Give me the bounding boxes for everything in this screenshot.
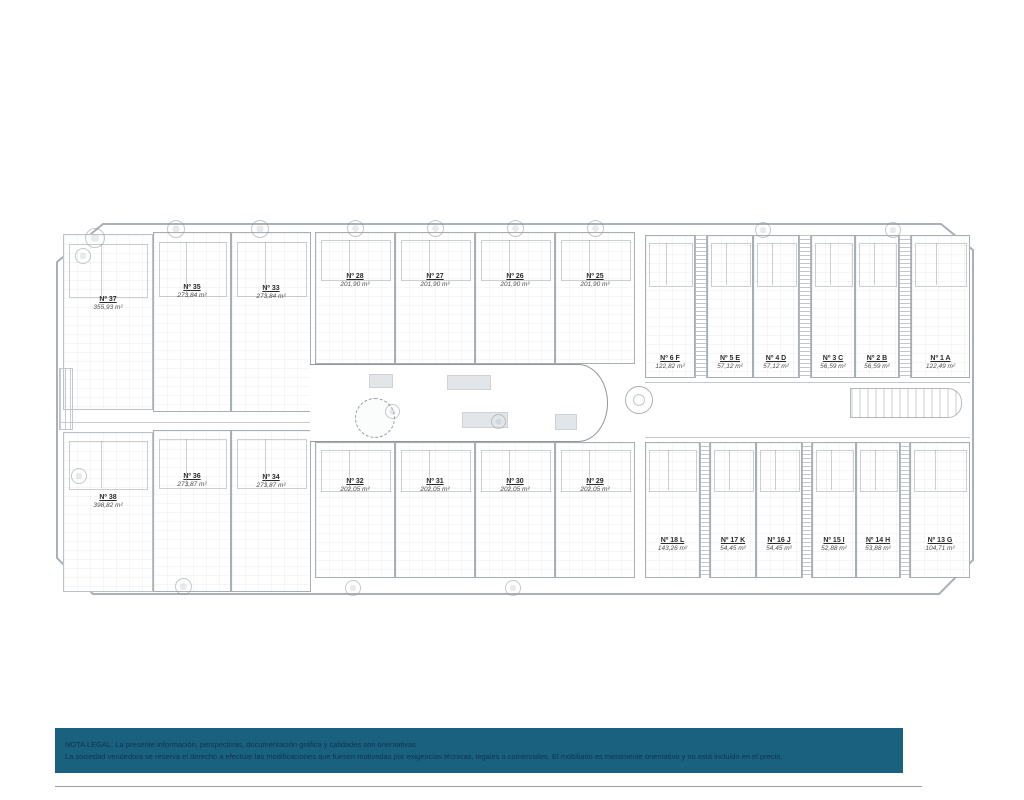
tree-icon [251, 220, 269, 238]
unit-label: Nº 27 201,90 m² [396, 233, 474, 363]
unit-number: Nº 27 [426, 272, 443, 281]
unit-number: Nº 15 I [823, 536, 844, 545]
unit-cell-25: Nº 25 201,90 m² [555, 232, 635, 364]
legal-notice-bar: NOTA LEGAL: La presente información, per… [55, 728, 903, 773]
pergola [447, 375, 491, 390]
unit-label: Nº 16 J 54,45 m² [757, 443, 801, 577]
unit-area: 201,90 m² [500, 281, 529, 289]
unit-cell-28: Nº 28 201,90 m² [315, 232, 395, 364]
stairs-icon [695, 235, 707, 378]
unit-area: 201,90 m² [580, 281, 609, 289]
unit-number: Nº 34 [262, 473, 279, 482]
unit-number: Nº 36 [183, 472, 200, 481]
unit-area: 104,71 m² [925, 545, 954, 553]
turning-circle-icon [625, 386, 653, 414]
unit-label: Nº 15 I 52,88 m² [813, 443, 855, 577]
unit-cell-32: Nº 32 202,05 m² [315, 442, 395, 578]
tree-icon [75, 248, 91, 264]
unit-label: Nº 31 202,05 m² [396, 443, 474, 577]
tree-icon [427, 220, 444, 237]
unit-area: 273,87 m² [177, 481, 206, 489]
unit-number: Nº 25 [586, 272, 603, 281]
unit-cell-27: Nº 27 201,90 m² [395, 232, 475, 364]
unit-label: Nº 29 202,05 m² [556, 443, 634, 577]
unit-label: Nº 6 F 122,82 m² [646, 236, 694, 377]
tree-icon [885, 222, 901, 238]
unit-area: 202,05 m² [420, 486, 449, 494]
unit-cell-13G: Nº 13 G 104,71 m² [910, 442, 970, 578]
unit-cell-34: Nº 34 273,87 m² [231, 430, 311, 592]
unit-cell-36: Nº 36 273,87 m² [153, 430, 231, 592]
unit-cell-2B: Nº 2 B 56,59 m² [855, 235, 899, 378]
stairs-icon [700, 442, 710, 578]
unit-label: Nº 38 398,82 m² [64, 433, 152, 591]
tree-icon [755, 222, 771, 238]
unit-label: Nº 34 273,87 m² [232, 431, 310, 591]
unit-number: Nº 13 G [928, 536, 953, 545]
bottom-divider [55, 786, 922, 787]
unit-label: Nº 33 273,84 m² [232, 233, 310, 411]
unit-label: Nº 25 201,90 m² [556, 233, 634, 363]
pergola [369, 374, 393, 388]
unit-number: Nº 4 D [766, 354, 786, 363]
unit-label: Nº 2 B 56,59 m² [856, 236, 898, 377]
unit-number: Nº 16 J [767, 536, 790, 545]
unit-area: 202,05 m² [340, 486, 369, 494]
unit-area: 57,12 m² [717, 363, 743, 371]
unit-number: Nº 31 [426, 477, 443, 486]
unit-cell-18L: Nº 18 L 143,26 m² [645, 442, 700, 578]
unit-cell-31: Nº 31 202,05 m² [395, 442, 475, 578]
unit-area: 122,49 m² [926, 363, 955, 371]
parking-strip [59, 368, 73, 430]
unit-cell-villa-38: Nº 38 398,82 m² [63, 432, 153, 592]
unit-area: 273,87 m² [256, 482, 285, 490]
unit-area: 122,82 m² [655, 363, 684, 371]
unit-cell-29: Nº 29 202,05 m² [555, 442, 635, 578]
stairs-icon [899, 235, 911, 378]
unit-cell-14H: Nº 14 H 53,88 m² [856, 442, 900, 578]
unit-cell-3C: Nº 3 C 56,59 m² [811, 235, 855, 378]
unit-cell-26: Nº 26 201,90 m² [475, 232, 555, 364]
unit-label: Nº 14 H 53,88 m² [857, 443, 899, 577]
unit-label: Nº 28 201,90 m² [316, 233, 394, 363]
tree-icon [491, 414, 506, 429]
unit-label: Nº 13 G 104,71 m² [911, 443, 969, 577]
tree-icon [345, 580, 361, 596]
tree-icon [71, 468, 87, 484]
legal-line-2: La sociedad vendedora se reserva el dere… [65, 752, 903, 761]
unit-area: 202,05 m² [500, 486, 529, 494]
unit-label: Nº 32 202,05 m² [316, 443, 394, 577]
unit-cell-5E: Nº 5 E 57,12 m² [707, 235, 753, 378]
tree-icon [507, 220, 524, 237]
unit-area: 273,84 m² [177, 292, 206, 300]
unit-number: Nº 35 [183, 283, 200, 292]
unit-number: Nº 17 K [721, 536, 745, 545]
unit-area: 56,59 m² [820, 363, 846, 371]
unit-number: Nº 33 [262, 284, 279, 293]
unit-number: Nº 14 H [866, 536, 890, 545]
unit-label: Nº 4 D 57,12 m² [754, 236, 798, 377]
unit-number: Nº 29 [586, 477, 603, 486]
unit-cell-33: Nº 33 273,84 m² [231, 232, 311, 412]
unit-label: Nº 35 273,84 m² [154, 233, 230, 411]
unit-number: Nº 2 B [867, 354, 887, 363]
unit-number: Nº 32 [346, 477, 363, 486]
unit-number: Nº 3 C [823, 354, 843, 363]
unit-cell-30: Nº 30 202,05 m² [475, 442, 555, 578]
unit-label: Nº 3 C 56,59 m² [812, 236, 854, 377]
legal-line-1: NOTA LEGAL: La presente información, per… [65, 740, 903, 749]
unit-area: 52,88 m² [821, 545, 847, 553]
stairs-icon [799, 235, 811, 378]
unit-area: 201,90 m² [420, 281, 449, 289]
unit-cell-6F: Nº 6 F 122,82 m² [645, 235, 695, 378]
stairs-icon [802, 442, 812, 578]
unit-number: Nº 28 [346, 272, 363, 281]
unit-cell-1A: Nº 1 A 122,49 m² [911, 235, 970, 378]
unit-cell-15I: Nº 15 I 52,88 m² [812, 442, 856, 578]
unit-area: 355,93 m² [93, 304, 122, 312]
unit-area: 57,12 m² [763, 363, 789, 371]
tree-icon [167, 220, 185, 238]
unit-cell-16J: Nº 16 J 54,45 m² [756, 442, 802, 578]
street-line [60, 422, 310, 423]
tree-icon [85, 228, 105, 248]
unit-label: Nº 26 201,90 m² [476, 233, 554, 363]
unit-area: 54,45 m² [766, 545, 792, 553]
unit-label: Nº 1 A 122,49 m² [912, 236, 969, 377]
pergola [555, 414, 577, 430]
unit-number: Nº 30 [506, 477, 523, 486]
unit-area: 53,88 m² [865, 545, 891, 553]
unit-label: Nº 17 K 54,45 m² [711, 443, 755, 577]
unit-number: Nº 37 [99, 295, 116, 304]
tree-icon [505, 580, 521, 596]
tree-icon [175, 578, 192, 595]
unit-number: Nº 38 [99, 493, 116, 502]
unit-cell-4D: Nº 4 D 57,12 m² [753, 235, 799, 378]
tree-icon [347, 220, 364, 237]
unit-area: 143,26 m² [658, 545, 687, 553]
unit-area: 201,90 m² [340, 281, 369, 289]
unit-label: Nº 18 L 143,26 m² [646, 443, 699, 577]
unit-area: 202,05 m² [580, 486, 609, 494]
unit-area: 273,84 m² [256, 293, 285, 301]
tree-icon [587, 220, 604, 237]
unit-number: Nº 26 [506, 272, 523, 281]
unit-number: Nº 5 E [720, 354, 740, 363]
unit-label: Nº 36 273,87 m² [154, 431, 230, 591]
unit-area: 54,45 m² [720, 545, 746, 553]
unit-number: Nº 18 L [661, 536, 685, 545]
unit-area: 398,82 m² [93, 502, 122, 510]
unit-number: Nº 1 A [930, 354, 950, 363]
unit-area: 56,59 m² [864, 363, 890, 371]
site-plan: Nº 37 355,93 m² Nº 38 398,82 m² Nº 35 27… [55, 218, 975, 600]
unit-cell-17K: Nº 17 K 54,45 m² [710, 442, 756, 578]
ramp-icon [850, 388, 962, 418]
unit-number: Nº 6 F [660, 354, 680, 363]
unit-cell-35: Nº 35 273,84 m² [153, 232, 231, 412]
unit-label: Nº 5 E 57,12 m² [708, 236, 752, 377]
tree-icon [385, 404, 400, 419]
stairs-icon [900, 442, 910, 578]
unit-label: Nº 30 202,05 m² [476, 443, 554, 577]
